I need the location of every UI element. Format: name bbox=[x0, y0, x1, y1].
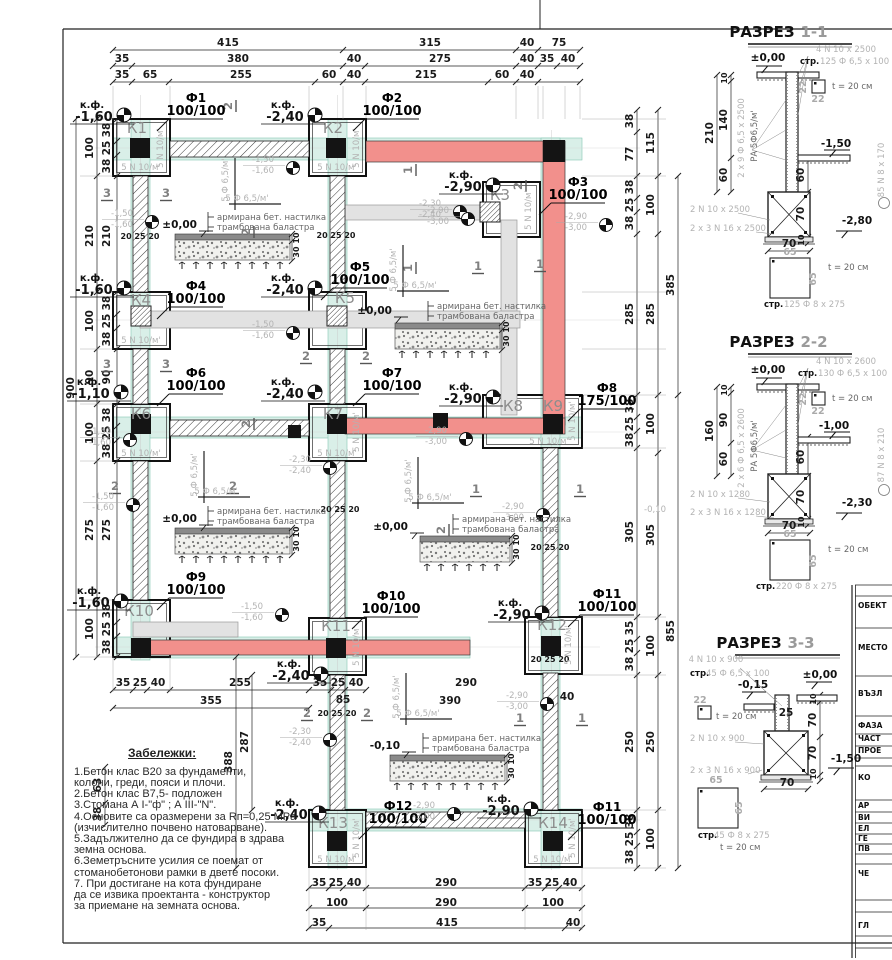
section-label: 10 bbox=[720, 384, 729, 396]
dim-label: 100 bbox=[645, 413, 657, 435]
titleblock-row: МЕСТО bbox=[858, 643, 888, 652]
rebar-note: 5 Ф 6,5/м' bbox=[393, 281, 436, 291]
dim-label: 250 bbox=[624, 731, 636, 753]
floor-dim-10: 10 bbox=[512, 534, 521, 546]
section-cut-mark: 2 bbox=[111, 479, 119, 493]
level-b: -2,40 bbox=[289, 466, 311, 476]
floor-layer-2: трамбована баластра bbox=[432, 744, 529, 754]
section-cut-mark: 3 bbox=[162, 357, 170, 371]
rebar-note: 5 N 10/м' bbox=[317, 449, 357, 459]
note-line: стоманобетонови рамки в двете посоки. bbox=[74, 868, 316, 879]
dim-label: 38 bbox=[624, 114, 636, 129]
level-a: -2,90 bbox=[425, 426, 447, 436]
titleblock-row: ПВ bbox=[858, 844, 870, 853]
rebar-note: 5 Ф 6,5/м' bbox=[194, 487, 237, 497]
level-marker bbox=[145, 215, 158, 228]
notes-block: Забележки: 1.Бетон клас В20 за фундамент… bbox=[74, 748, 316, 912]
foundation-size: 100/100 bbox=[362, 104, 421, 119]
foundation-name: Ф6 bbox=[186, 366, 206, 380]
dim-label: 25 bbox=[101, 141, 113, 156]
section-number: 3-3 bbox=[787, 634, 814, 652]
note-line: 4.Основите са оразмерени за Rп=0,25 MPa bbox=[74, 812, 316, 823]
dim-label: 100 bbox=[84, 310, 96, 332]
section-label: 60 bbox=[718, 168, 730, 183]
dim-label: 38 bbox=[624, 850, 636, 865]
section-label: 2 x 6 Ф 6,5 x 2600 bbox=[737, 408, 747, 488]
dim-label: 65 bbox=[143, 69, 158, 81]
note-line: 6.Земетръсните усилия се поемат от bbox=[74, 856, 316, 867]
sections-geometry bbox=[698, 44, 890, 828]
section-label: стр. bbox=[800, 57, 819, 67]
note-line: 1.Бетон клас В20 за фундаменти, bbox=[74, 767, 316, 778]
foundation-name: Ф5 bbox=[350, 260, 370, 274]
level-marker bbox=[123, 433, 136, 446]
dim-label: 40 bbox=[347, 877, 362, 889]
section-label: 2 N 10 x 900 bbox=[690, 734, 745, 744]
section-label: ±0,00 bbox=[751, 52, 786, 64]
dim-label: 25 bbox=[624, 198, 636, 213]
dim-label: 40 bbox=[563, 877, 578, 889]
dim-label: 40 bbox=[347, 53, 362, 65]
column-name: К8 bbox=[503, 397, 523, 415]
section-label: 70 bbox=[795, 490, 807, 505]
floor-dim-10: 10 bbox=[502, 321, 511, 333]
section-label: 22 bbox=[811, 94, 824, 105]
dim-label: 35 bbox=[312, 917, 327, 929]
dim-label: 305 bbox=[645, 524, 657, 546]
level-b: -1,60 bbox=[92, 503, 114, 513]
dim-label: 390 bbox=[439, 695, 461, 707]
column-name: К6 bbox=[131, 405, 151, 423]
dim-label: 210 bbox=[84, 225, 96, 247]
level-marker bbox=[599, 218, 612, 231]
column-name: К2 bbox=[323, 119, 343, 137]
foundation-name: Ф2 bbox=[382, 91, 402, 105]
foundation-name: Ф11 bbox=[593, 800, 622, 814]
level-b: -3,00 bbox=[413, 812, 435, 822]
section-label: 25 bbox=[779, 707, 794, 719]
section-label: 65 bbox=[808, 272, 819, 285]
rebar-note: 5 N 10/м' bbox=[317, 855, 357, 865]
section-cut-mark: 1 bbox=[401, 166, 415, 174]
note-line: земна основа. bbox=[74, 845, 316, 856]
section-label: 60 bbox=[795, 450, 807, 465]
level-a: -1,50 bbox=[252, 320, 274, 330]
dim-label: 40 bbox=[347, 69, 362, 81]
dim-label: 38 bbox=[101, 408, 113, 423]
dim-label: 40 bbox=[520, 37, 535, 49]
dim-label: 290 bbox=[455, 677, 477, 689]
section-label: ±0,00 bbox=[751, 364, 786, 376]
section-label: -1,50 bbox=[821, 138, 851, 150]
dim-label: 38 bbox=[101, 332, 113, 347]
foundation-size: 100/100 bbox=[166, 104, 225, 119]
section-label: 85 N 8 x 170 bbox=[877, 143, 887, 198]
floor-dim-30: 30 bbox=[502, 335, 511, 347]
note-line: 3.Стомана А I-"ф" ; А III-"N". bbox=[74, 800, 316, 811]
dim-label: 38 bbox=[624, 180, 636, 195]
level-marker bbox=[308, 281, 322, 295]
section-label: -2,30 bbox=[842, 497, 872, 509]
level-marker bbox=[286, 161, 299, 174]
foundation-size: 100/100 bbox=[166, 583, 225, 598]
section-title: РАЗРЕЗ bbox=[716, 634, 781, 652]
level-marker bbox=[308, 385, 322, 399]
dim-label: 355 bbox=[200, 695, 222, 707]
level-b: -2,40 bbox=[289, 738, 311, 748]
level-marker bbox=[126, 498, 139, 511]
rebar-note: 5 N 10/м' bbox=[156, 128, 166, 168]
dim-label: 25 bbox=[133, 677, 148, 689]
rebar-note: 5 N 10/м' bbox=[121, 163, 161, 173]
section-number: 1-1 bbox=[800, 23, 827, 41]
level-a: -2,30 bbox=[289, 727, 311, 737]
level-a: -1,50 bbox=[241, 602, 263, 612]
foundation-name: Ф1 bbox=[186, 91, 206, 105]
section-label: 10 bbox=[809, 768, 818, 780]
level-marker bbox=[275, 608, 288, 621]
level-b: -1,60 bbox=[111, 220, 133, 230]
section-label: стр. bbox=[756, 582, 775, 592]
note-line: 7. При достигане на кота фундиране bbox=[74, 879, 316, 890]
drawing-sheet: ОБЕКТМЕСТОВЪЗЛФАЗАЧАСТПРОЕКОАРВИЕЛГЕПВЧЕ… bbox=[0, 0, 892, 960]
section-label: 70 bbox=[780, 777, 795, 789]
titleblock-row: КО bbox=[858, 773, 871, 782]
section-title: РАЗРЕЗ bbox=[729, 23, 794, 41]
section-cut-mark: 3 bbox=[103, 357, 111, 371]
section-label: 160 bbox=[704, 420, 716, 442]
dim-label: 38 bbox=[101, 640, 113, 655]
kf-value: -2,90 bbox=[482, 804, 519, 819]
level-marker bbox=[323, 733, 336, 746]
section-cut-mark: 2 bbox=[363, 706, 371, 720]
dim-label: 415 bbox=[217, 37, 239, 49]
floor-layer-1: армирана бет. настилка bbox=[217, 213, 326, 223]
section-label: 10 bbox=[797, 234, 806, 246]
foundation-size: 100/100 bbox=[548, 188, 607, 203]
dim-label: 100 bbox=[84, 137, 96, 159]
section-cut-mark: 1 bbox=[536, 257, 544, 271]
section-label: 2 x 9 Ф 6,5 x 2500 bbox=[737, 98, 747, 178]
section-label: t = 20 см bbox=[720, 843, 760, 853]
level-marker bbox=[461, 212, 474, 225]
section-label: -0,15 bbox=[738, 679, 768, 691]
level-b: -3,00 bbox=[425, 437, 447, 447]
floor-layer-1: армирана бет. настилка bbox=[462, 515, 571, 525]
section-cut-mark: 1 bbox=[576, 482, 584, 496]
section-label: 2 x 3 N 16 x 2500 bbox=[690, 224, 766, 234]
level-b: -1,60 bbox=[241, 613, 263, 623]
section-cut-mark: 2 bbox=[239, 420, 253, 428]
dim-label: 40 bbox=[561, 53, 576, 65]
dim-label: 25 bbox=[545, 877, 560, 889]
dim-label: 35 bbox=[540, 53, 555, 65]
column-name: К9 bbox=[543, 397, 563, 415]
dim-label: 35 bbox=[116, 677, 131, 689]
foundation-size: 100/100 bbox=[166, 292, 225, 307]
dim-label: 35 bbox=[115, 69, 130, 81]
floor-layer-1: армирана бет. настилка bbox=[437, 302, 546, 312]
dim-label: 115 bbox=[645, 132, 657, 154]
rebar-note: 5 N 10/м' bbox=[121, 449, 161, 459]
column-name: К4 bbox=[131, 291, 151, 309]
section-label: 70 bbox=[807, 746, 819, 761]
floor-dim-30: 30 bbox=[292, 246, 301, 258]
dim-label: 25 bbox=[101, 622, 113, 637]
section-cut-mark: 1 bbox=[474, 259, 482, 273]
level-a: -2,90 bbox=[413, 801, 435, 811]
kf-value: -2,40 bbox=[266, 387, 303, 402]
section-label: 2 x 3 N 16 x 1280 bbox=[690, 508, 766, 518]
foundation-name: Ф11 bbox=[593, 587, 622, 601]
kf-value: -2,90 bbox=[444, 392, 481, 407]
section-label: 220 Ф 8 x 275 bbox=[776, 582, 837, 592]
section-label: t = 20 см bbox=[716, 712, 756, 722]
section-cut-mark: 2 bbox=[511, 182, 525, 190]
section-label: РА 5Ф6,5/м' bbox=[750, 110, 760, 162]
dim-label: 38 bbox=[624, 216, 636, 231]
level-b: -3,00 bbox=[506, 702, 528, 712]
note-line: да се извика проектанта - конструктор bbox=[74, 890, 316, 901]
section-label: ±0,00 bbox=[803, 669, 838, 681]
titleblock-row: ЕЛ bbox=[858, 824, 869, 833]
floor-dim-30: 30 bbox=[507, 767, 516, 779]
level-a: -0,10 bbox=[644, 505, 666, 515]
level-marker bbox=[524, 802, 538, 816]
rebar-note: 5 N 10/м' bbox=[533, 855, 573, 865]
dim-label: 40 bbox=[520, 53, 535, 65]
section-label: 22 bbox=[798, 392, 809, 405]
section-label: 130 Ф 6,5 x 100 bbox=[818, 369, 887, 379]
rebar-note: 5 Ф 6,5/м' bbox=[225, 194, 268, 204]
level-a: -2,90 bbox=[427, 206, 449, 216]
floor-level: ±0,00 bbox=[373, 521, 408, 533]
floor-dim-10: 10 bbox=[292, 232, 301, 244]
titleblock-row: ОБЕКТ bbox=[858, 601, 887, 610]
dim-label: 255 bbox=[230, 69, 252, 81]
section-label: 210 bbox=[704, 122, 716, 144]
dim-label: 100 bbox=[326, 897, 348, 909]
rebar-note: 5 Ф 6,5/м' bbox=[396, 709, 439, 719]
kf-value: -1,60 bbox=[75, 110, 112, 125]
floor-layer-2: трамбована баластра bbox=[217, 517, 314, 527]
kf-value: -1,60 bbox=[72, 596, 109, 611]
dim-label: 255 bbox=[229, 677, 251, 689]
dim-label: 60 bbox=[495, 69, 510, 81]
level-marker bbox=[459, 432, 472, 445]
titleblock-row: ЧЕ bbox=[858, 869, 869, 878]
level-marker bbox=[117, 281, 131, 295]
column-name: К5 bbox=[335, 289, 355, 307]
section-label: 65 bbox=[709, 775, 722, 786]
floor-layer-2: трамбована баластра bbox=[217, 223, 314, 233]
section-cut-mark: 3 bbox=[162, 186, 170, 200]
titleblock-row: АР bbox=[858, 801, 870, 810]
section-label: -1,00 bbox=[819, 420, 849, 432]
rebar-note: 5 N 10/м' bbox=[317, 163, 357, 173]
dim-label: 100 bbox=[645, 635, 657, 657]
section-label: 2 N 10 x 1280 bbox=[690, 490, 750, 500]
kf-value: -2,40 bbox=[266, 283, 303, 298]
level-b: -1,60 bbox=[252, 166, 274, 176]
level-marker bbox=[486, 178, 500, 192]
titleblock-row: ГЛ bbox=[858, 921, 869, 930]
dim-label: 20 25 20 bbox=[531, 543, 570, 552]
note-line: (изчислително почвено натоварване). bbox=[74, 823, 316, 834]
floor-dim-30: 30 bbox=[292, 540, 301, 552]
section-cut-mark: 2 bbox=[303, 706, 311, 720]
foundation-name: Ф12 bbox=[384, 799, 413, 813]
section-label: 65 bbox=[808, 554, 819, 567]
rebar-note: 5 N 10/м' bbox=[529, 437, 569, 447]
dim-label: 85 bbox=[336, 694, 351, 706]
titleblock-row: ГЕ bbox=[858, 834, 868, 843]
level-a: -1,50 bbox=[89, 427, 111, 437]
dim-label: 35 bbox=[624, 621, 636, 636]
note-line: за приемане на земната основа. bbox=[74, 901, 316, 912]
section-label: РА 5Ф6,5/м' bbox=[750, 420, 760, 472]
foundation-name: Ф8 bbox=[597, 381, 617, 395]
dim-label: 40 bbox=[560, 691, 575, 703]
dim-label: 385 bbox=[665, 274, 677, 296]
dim-label: 38 bbox=[101, 159, 113, 174]
section-label: 87 N 8 x 210 bbox=[877, 428, 887, 483]
section-label: 65 bbox=[734, 801, 745, 814]
floor-level: ±0,00 bbox=[162, 219, 197, 231]
section-label: t = 20 см bbox=[828, 263, 868, 273]
column-name: К7 bbox=[323, 405, 343, 423]
titleblock-row: ПРОЕ bbox=[858, 746, 881, 755]
kf-value: -1,10 bbox=[72, 387, 109, 402]
section-label: 65 bbox=[783, 247, 796, 258]
section-cut-mark: 1 bbox=[516, 711, 524, 725]
dim-label: 415 bbox=[436, 917, 458, 929]
column-name: К14 bbox=[538, 814, 568, 832]
foundation-size: 100/100 bbox=[577, 600, 636, 615]
floor-level: -0,10 bbox=[370, 740, 400, 752]
level-marker bbox=[447, 807, 460, 820]
dim-label: 100 bbox=[645, 828, 657, 850]
section-cut-mark: 2 bbox=[434, 526, 448, 534]
section-cut-mark: 2 bbox=[362, 349, 370, 363]
level-b: -1,60 bbox=[252, 331, 274, 341]
section-label: 70 bbox=[807, 713, 819, 728]
section-label: 45 Ф 6,5 x 100 bbox=[706, 669, 770, 679]
level-marker bbox=[117, 108, 131, 122]
level-a: -1,50 bbox=[111, 209, 133, 219]
dim-label: 25 bbox=[624, 417, 636, 432]
section-label: 2 x 3 N 16 x 900 bbox=[690, 766, 761, 776]
dim-label: 75 bbox=[552, 37, 567, 49]
dim-label: 275 bbox=[84, 519, 96, 541]
section-label: 90 bbox=[718, 413, 730, 428]
section-label: 4 N 10 x 900 bbox=[689, 655, 744, 665]
dim-label: 285 bbox=[624, 303, 636, 325]
foundation-name: Ф10 bbox=[377, 589, 406, 603]
dim-label: 25 bbox=[624, 639, 636, 654]
dim-label: 40 bbox=[520, 69, 535, 81]
dim-label: 20 25 20 bbox=[321, 505, 360, 514]
dim-label: 38 bbox=[624, 657, 636, 672]
rebar-note: 5 N 10/м' bbox=[524, 190, 534, 230]
kf-value: -2,90 bbox=[444, 180, 481, 195]
titleblock-row: ЧАСТ bbox=[858, 734, 881, 743]
level-marker bbox=[540, 697, 553, 710]
foundation-name: Ф7 bbox=[382, 366, 402, 380]
dim-label: 100 bbox=[645, 194, 657, 216]
floor-layer-1: армирана бет. настилка bbox=[217, 507, 326, 517]
section-label: t = 20 см bbox=[832, 82, 872, 92]
level-marker bbox=[286, 326, 299, 339]
dim-label: 305 bbox=[624, 521, 636, 543]
dim-label: 20 25 20 bbox=[318, 709, 357, 718]
rebar-note: 5 Ф 6,5/м' bbox=[408, 493, 451, 503]
dim-label: 25 bbox=[331, 677, 346, 689]
floor-level: ±0,00 bbox=[357, 305, 392, 317]
note-line: колони, греди, пояси и плочи. bbox=[74, 778, 316, 789]
dim-label: 380 bbox=[227, 53, 249, 65]
level-a: -1,50 bbox=[92, 492, 114, 502]
dim-label: 25 bbox=[624, 832, 636, 847]
floor-dim-10: 10 bbox=[292, 526, 301, 538]
dim-label: 60 bbox=[322, 69, 337, 81]
floor-dim-30: 30 bbox=[512, 548, 521, 560]
section-cut-mark: 2 bbox=[302, 349, 310, 363]
section-label: 4 N 10 x 2500 bbox=[816, 45, 876, 55]
section-label: 10 bbox=[809, 693, 818, 705]
floor-layer-1: армирана бет. настилка bbox=[432, 734, 541, 744]
section-label: 10 bbox=[720, 72, 729, 84]
foundation-name: Ф4 bbox=[186, 279, 206, 293]
section-label: 125 Ф 8 x 275 bbox=[784, 300, 845, 310]
level-a: -1,50 bbox=[252, 155, 274, 165]
section-label: 140 bbox=[718, 109, 730, 131]
dim-label: 40 bbox=[349, 677, 364, 689]
dim-label: 315 bbox=[419, 37, 441, 49]
section-label: t = 20 см bbox=[828, 545, 868, 555]
foundation-size: 100/100 bbox=[330, 273, 389, 288]
floor-layer-2: трамбована баластра bbox=[462, 525, 559, 535]
dim-label: 275 bbox=[429, 53, 451, 65]
kf-value: -2,90 bbox=[493, 608, 530, 623]
dim-label: 77 bbox=[624, 147, 636, 162]
kf-value: -1,60 bbox=[75, 283, 112, 298]
dim-label: 250 bbox=[645, 731, 657, 753]
dim-label: 285 bbox=[645, 303, 657, 325]
dim-label: 25 bbox=[101, 314, 113, 329]
foundation-name: Ф9 bbox=[186, 570, 206, 584]
floor-layer-2: трамбована баластра bbox=[437, 312, 534, 322]
section-label: 22 bbox=[798, 80, 809, 93]
foundation-size: 100/100 bbox=[361, 602, 420, 617]
section-label: -2,80 bbox=[842, 215, 872, 227]
section-cut-mark: 1 bbox=[401, 264, 415, 272]
rebar-note: 5 N 10/м' bbox=[121, 336, 161, 346]
level-marker bbox=[535, 606, 549, 620]
dim-label: 35 bbox=[528, 877, 543, 889]
section-label: 70 bbox=[795, 207, 807, 222]
dim-label: 855 bbox=[665, 620, 677, 642]
dim-label: 38 bbox=[624, 433, 636, 448]
column-name: К1 bbox=[127, 119, 147, 137]
note-line: 2.Бетон клас В7,5- подложен bbox=[74, 789, 316, 800]
dim-label: 215 bbox=[415, 69, 437, 81]
kf-value: -2,40 bbox=[266, 110, 303, 125]
titleblock-row: ВИ bbox=[858, 813, 870, 822]
title-block: ОБЕКТМЕСТОВЪЗЛФАЗАЧАСТПРОЕКОАРВИЕЛГЕПВЧЕ… bbox=[852, 585, 892, 958]
dim-label: 20 25 20 bbox=[317, 231, 356, 240]
floor-dim-10: 10 bbox=[507, 753, 516, 765]
